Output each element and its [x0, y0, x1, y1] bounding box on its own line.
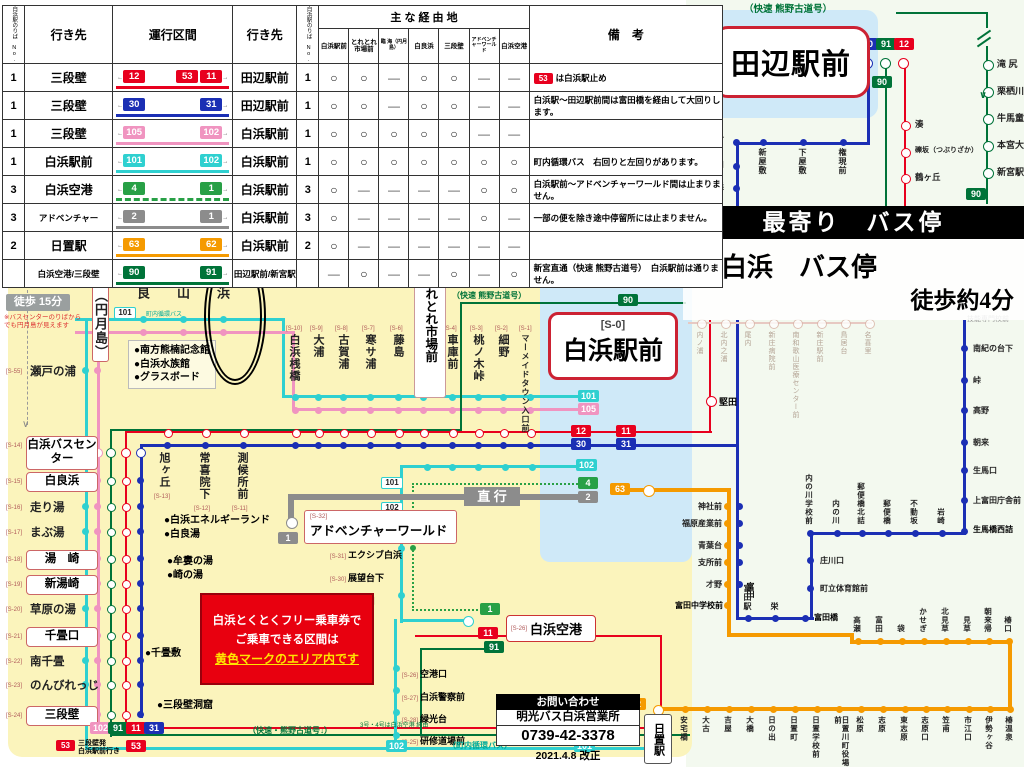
- walk15-note: ※バスセンターのりばからでも円月島が見えます: [4, 314, 84, 331]
- station-label: 本宮大社前: [997, 140, 1024, 150]
- station-label: [S-13]: [154, 494, 170, 501]
- station-label: [S-8]: [335, 326, 348, 333]
- route-line: [622, 488, 729, 492]
- table-cell: ○: [439, 260, 469, 288]
- stop-dot: [315, 394, 322, 401]
- table-cell: ○: [409, 120, 439, 148]
- table-cell: 2: [3, 232, 25, 260]
- station-label-v: 日置町: [790, 716, 798, 742]
- route-badge-11: 11: [616, 425, 636, 437]
- stop-dot: [697, 319, 707, 329]
- contact-header: お問い合わせ: [496, 694, 640, 710]
- table-cell: —: [379, 260, 409, 288]
- table-cell: —: [409, 176, 439, 204]
- stop-dot: [736, 520, 743, 527]
- table-cell: ○: [439, 120, 469, 148]
- table-cell: ○: [319, 148, 349, 176]
- stop-dot: [865, 319, 875, 329]
- station-label-v: 桃ノ木峠: [472, 334, 483, 382]
- table-cell: 田辺駅前: [233, 64, 297, 92]
- table-cell: ○: [469, 148, 499, 176]
- table-cell: —: [379, 176, 409, 204]
- stop-dot: [834, 530, 841, 537]
- stop-dot: [475, 394, 482, 401]
- stop-dot: [807, 557, 814, 564]
- stop-dot: [502, 464, 509, 471]
- route-badge-2: 2: [578, 491, 598, 503]
- station-label: のんびれっじ: [30, 680, 99, 693]
- table-cell: 1: [3, 120, 25, 148]
- station-label: [S-27]白浜警察前: [402, 687, 465, 705]
- stop-dot: [367, 394, 374, 401]
- station-label-v: 内の川: [832, 500, 840, 526]
- stop-dot: [736, 581, 743, 588]
- station-label-v: 寒サ浦: [364, 334, 375, 370]
- route-chip-101: 101: [123, 154, 145, 167]
- stop-dot: [107, 580, 116, 589]
- stop-dot: [500, 407, 507, 414]
- stop-dot: [643, 485, 655, 497]
- route-badge-4: 4: [578, 477, 598, 489]
- stop-dot: [901, 121, 911, 131]
- stop-dot: [772, 615, 779, 622]
- airport-via-note: 3号・4号は白浜空港 経由: [360, 720, 428, 729]
- station-label: まぶ湯: [30, 527, 65, 540]
- stop-dot: [286, 517, 298, 529]
- station-box: 千畳口: [26, 627, 98, 647]
- stop-dot: [745, 319, 755, 329]
- route-chip-63: 63: [123, 238, 145, 251]
- adventure-world-label: アドベンチャーワールド: [310, 520, 456, 539]
- stop-dot: [724, 503, 731, 510]
- poi-note: ●三段壁洞窟: [157, 699, 213, 713]
- station-box: 白浜バスセンター: [26, 436, 98, 470]
- route-line: [140, 444, 738, 447]
- table-row: 白浜空港/三段壁←9091→田辺駅前/新宮駅—○——○—○新宮直通（快速 熊野古…: [3, 260, 723, 288]
- stop-dot: [793, 319, 803, 329]
- table-cell: ○: [469, 204, 499, 232]
- stop-dot: [315, 429, 324, 438]
- contact-office: 明光バス白浜営業所: [497, 710, 639, 726]
- route-line: [282, 318, 285, 398]
- free-pass-line2: ご乗車できる区間は: [202, 631, 372, 647]
- stop-dot: [395, 394, 402, 401]
- table-cell: ○: [499, 176, 529, 204]
- station-label-v: かせぎ: [919, 608, 927, 634]
- table-cell: —: [439, 204, 469, 232]
- station-label-v: 測候所前: [236, 452, 247, 500]
- table-cell: ←125311→: [113, 64, 233, 92]
- station-label-v: 日の出: [768, 716, 776, 742]
- stop-dot: [393, 687, 400, 694]
- route-line: [1008, 640, 1012, 710]
- station-label-v: 岩崎: [937, 508, 945, 525]
- stop-dot: [106, 448, 116, 458]
- route-line: [736, 446, 739, 620]
- station-label-v: 椿口: [1004, 616, 1012, 633]
- station-label-v: 富田駅: [743, 584, 751, 611]
- table-cell: 一部の便を除き途中停留所には止まりません。: [529, 204, 722, 232]
- stop-dot: [137, 711, 144, 718]
- stop-dot: [137, 681, 144, 688]
- stop-dot: [367, 442, 374, 449]
- station-label: 神社前: [698, 502, 722, 511]
- station-label: 牛馬童子口: [997, 113, 1024, 123]
- kaisoku-kumano-top-label: （快速 熊野古道号）: [744, 1, 832, 15]
- stop-dot: [202, 442, 209, 449]
- contact-revision: 2021.4.8 改正: [496, 748, 640, 763]
- stop-dot: [912, 530, 919, 537]
- stop-dot: [180, 329, 187, 336]
- stop-dot: [137, 605, 144, 612]
- station-label-v: 朝来帰: [984, 608, 992, 634]
- table-cell: ←6362→: [113, 232, 233, 260]
- table-cell: ○: [409, 64, 439, 92]
- stop-dot: [137, 477, 144, 484]
- stop-dot: [137, 632, 144, 639]
- table-cell: —: [499, 232, 529, 260]
- table-cell: 白浜駅のりば No.: [297, 6, 319, 64]
- free-pass-promo-box: 白浜とくとくフリー乗車券で ご乗車できる区間は 黄色マークのエリア内です: [200, 593, 374, 685]
- timetable: 白浜駅のりば No.行き先運行区間行き先白浜駅のりば No.主 な 経 由 地備…: [2, 5, 723, 288]
- route-line: [727, 633, 854, 637]
- station-label: ∨: [22, 419, 29, 431]
- stop-dot: [745, 615, 752, 622]
- stop-dot: [449, 442, 456, 449]
- stop-dot: [82, 503, 89, 510]
- station-label: [S-19]: [6, 582, 22, 589]
- table-row: 1三段壁←3031→田辺駅前1○○—○○——白浜駅〜田辺駅前間は富田橋を経由して…: [3, 92, 723, 120]
- stop-dot: [724, 581, 731, 588]
- stop-dot: [807, 585, 814, 592]
- table-cell: 白浜駅前: [233, 204, 297, 232]
- free-pass-line1: 白浜とくとくフリー乗車券で: [202, 612, 372, 628]
- station-label-v: 権現前: [838, 148, 846, 175]
- route-badge-1: 1: [278, 532, 298, 544]
- station-label-v: 新庄駅前: [816, 331, 823, 363]
- stop-dot: [164, 429, 173, 438]
- station-label-v: 見草: [963, 616, 971, 633]
- station-label: [S-15]: [6, 479, 22, 486]
- table-cell: 運行区間: [113, 6, 233, 64]
- route-badge-12: 12: [894, 38, 914, 50]
- stop-dot: [292, 429, 301, 438]
- stop-dot: [475, 429, 484, 438]
- table-cell: ○: [319, 92, 349, 120]
- station-label: 南紀の台下: [973, 344, 1013, 353]
- nearest-stop-panel: 東白浜 バス停 徒歩約4分: [683, 239, 1024, 320]
- station-label: 鶴ヶ丘: [915, 173, 941, 183]
- table-cell: 備 考: [529, 6, 722, 64]
- route-badge-53: 53: [126, 740, 146, 752]
- table-cell: —: [379, 64, 409, 92]
- table-cell: ○: [439, 148, 469, 176]
- chonai-top-label: 町内循環バス: [146, 309, 182, 318]
- stop-dot: [500, 442, 507, 449]
- stop-dot: [122, 711, 131, 720]
- stop-dot: [961, 439, 968, 446]
- table-cell: —: [499, 204, 529, 232]
- route-badge-101: 101: [114, 307, 136, 319]
- table-cell: 白浜駅〜田辺駅前間は富田橋を経由して大回りします。: [529, 92, 722, 120]
- stop-dot: [760, 139, 767, 146]
- stop-dot: [395, 429, 404, 438]
- shirahama-station-id: [S-0]: [551, 319, 675, 331]
- stop-dot: [736, 542, 743, 549]
- stop-dot: [121, 448, 131, 458]
- table-cell: 行き先: [233, 6, 297, 64]
- station-label: [S-11]: [232, 506, 248, 513]
- route-line: [810, 532, 813, 620]
- stop-dot: [164, 442, 171, 449]
- shirahama-station-box: [S-0] 白浜駅前: [548, 312, 678, 380]
- stop-dot: [704, 706, 711, 713]
- stop-dot: [122, 657, 131, 666]
- table-cell: —: [469, 120, 499, 148]
- station-label-v: 東志原: [900, 716, 908, 742]
- station-label-v: 椿温泉: [1005, 716, 1013, 742]
- route53-note-line2: 白浜駅前行き: [78, 748, 120, 756]
- nearest-stop-banner: 最寄り バス停: [683, 206, 1024, 239]
- airport-label: 白浜空港: [530, 619, 582, 638]
- table-cell: ←101102→: [113, 148, 233, 176]
- table-cell: ○: [379, 120, 409, 148]
- table-cell: ○: [349, 260, 379, 288]
- stop-dot: [393, 709, 400, 716]
- station-label: 礫坂（つぶりざか）: [915, 147, 978, 155]
- station-label-v: 吉屋: [724, 716, 732, 733]
- station-label-v: 伊勢ヶ谷: [985, 716, 993, 750]
- route-badge-101: 101: [578, 390, 599, 402]
- stop-dot: [137, 555, 144, 562]
- route-chip-31: 31: [200, 98, 222, 111]
- table-cell: —: [439, 232, 469, 260]
- stop-dot: [82, 657, 89, 664]
- route-badge-90: 90: [966, 188, 986, 200]
- stop-dot: [748, 706, 755, 713]
- stop-dot: [137, 580, 144, 587]
- table-cell: 三段壁: [25, 92, 113, 120]
- stop-dot: [240, 429, 249, 438]
- stop-dot: [449, 464, 456, 471]
- table-row: 1白浜駅前←101102→白浜駅前1○○○○○○○町内循環バス 右回りと左回りが…: [3, 148, 723, 176]
- route-line: [288, 494, 580, 500]
- shirahama-station-label: 白浜駅前: [551, 331, 675, 367]
- station-label: [S-1]: [519, 326, 532, 333]
- station-label: 上富田庁舎前: [973, 496, 1021, 505]
- table-cell: ○: [349, 92, 379, 120]
- station-label: [S-14]: [6, 443, 22, 450]
- station-label-v: 北見草: [941, 608, 949, 634]
- route-chip-2: 2: [123, 210, 145, 223]
- table-cell: —: [469, 92, 499, 120]
- route-chip-102: 102: [200, 154, 222, 167]
- stop-dot: [82, 367, 89, 374]
- table-cell: アドベンチャーワールド: [469, 29, 499, 64]
- route-badge-102: 102: [386, 740, 407, 752]
- stop-dot: [292, 407, 299, 414]
- stop-dot: [475, 464, 482, 471]
- station-label: [S-7]: [362, 326, 375, 333]
- stop-dot: [340, 407, 347, 414]
- table-row: 3白浜空港←41→白浜駅前3○————○○白浜駅前〜アドベンチャーワールド間は止…: [3, 176, 723, 204]
- station-label: 湊: [915, 120, 924, 130]
- station-label: 生馬口: [973, 466, 997, 475]
- stop-dot: [122, 528, 131, 537]
- table-cell: —: [409, 260, 439, 288]
- stop-dot: [107, 528, 116, 537]
- station-label: [S-10]: [286, 326, 302, 333]
- route-line: [412, 483, 582, 485]
- stop-dot: [107, 605, 116, 614]
- stop-dot: [136, 448, 146, 458]
- stop-dot: [987, 706, 994, 713]
- bus-route-map-poster: 白浜駅のりば No.行き先運行区間行き先白浜駅のりば No.主 な 経 由 地備…: [0, 0, 1024, 767]
- station-tondabashi: 富田橋: [814, 612, 838, 623]
- table-cell: [3, 260, 25, 288]
- stop-dot: [107, 657, 116, 666]
- station-label-v: 下屋敷: [798, 148, 806, 175]
- stop-dot: [82, 605, 89, 612]
- stop-dot: [315, 442, 322, 449]
- kaisoku-mid-label: （快速 熊野古道号）: [452, 290, 526, 301]
- station-label: [S-6]: [390, 326, 403, 333]
- stop-dot: [449, 394, 456, 401]
- station-label: [S-23]: [6, 683, 22, 690]
- station-label: 栗栖川: [997, 86, 1024, 96]
- stop-dot: [901, 148, 911, 158]
- stop-dot: [340, 429, 349, 438]
- stop-dot: [410, 545, 416, 551]
- route-badge-91: 91: [876, 38, 896, 50]
- stop-dot: [292, 394, 299, 401]
- station-label-v: 古賀浦: [337, 334, 348, 370]
- stop-dot: [137, 657, 144, 664]
- table-cell: ←9091→: [113, 260, 233, 288]
- table-cell: ○: [439, 64, 469, 92]
- stop-dot: [792, 706, 799, 713]
- stop-dot: [107, 711, 116, 720]
- table-cell: 白浜駅前: [233, 148, 297, 176]
- stop-dot: [122, 555, 131, 564]
- table-cell: 3: [3, 176, 25, 204]
- stop-dot: [94, 503, 101, 510]
- route-badge-11: 11: [126, 722, 146, 734]
- stop-dot: [94, 657, 101, 664]
- station-box: 白良浜: [26, 472, 98, 492]
- stop-dot: [859, 530, 866, 537]
- table-cell: —: [349, 176, 379, 204]
- station-label-v: 旭ヶ丘: [158, 452, 169, 488]
- table-cell: 三段壁: [439, 29, 469, 64]
- table-cell: 白浜空港: [25, 176, 113, 204]
- table-cell: 3: [297, 204, 319, 232]
- route-badge-31: 31: [616, 438, 636, 450]
- stop-dot: [836, 706, 843, 713]
- station-label: 南千畳: [30, 656, 65, 669]
- stop-dot: [449, 429, 458, 438]
- route-chip-91: 91: [200, 266, 222, 279]
- table-cell: —: [379, 92, 409, 120]
- route-line: [904, 64, 906, 206]
- table-cell: 三段壁: [25, 64, 113, 92]
- table-cell: 日置駅: [25, 232, 113, 260]
- station-box: 三段壁: [26, 706, 98, 726]
- stop-dot: [877, 638, 884, 645]
- route-chip-62: 62: [200, 238, 222, 251]
- table-cell: 白浜駅前: [233, 232, 297, 260]
- stop-dot: [424, 464, 431, 471]
- stop-dot: [901, 174, 911, 184]
- station-label: 高野: [973, 406, 989, 415]
- table-cell: —: [469, 232, 499, 260]
- stop-dot: [393, 665, 400, 672]
- table-cell: 3: [297, 176, 319, 204]
- station-label-v: 市江口: [964, 716, 972, 742]
- kaisoku-bottom-label: （快速・熊野古道号↓）: [248, 725, 332, 736]
- stop-dot: [770, 706, 777, 713]
- hiki-station-box: 日置駅: [644, 714, 672, 764]
- station-label: [S-9]: [310, 326, 323, 333]
- station-label: [S-22]: [6, 659, 22, 666]
- route-badge-31: 31: [144, 722, 164, 734]
- stop-dot: [855, 638, 862, 645]
- table-cell: 白良浜: [409, 29, 439, 64]
- route-line: [709, 320, 711, 432]
- station-label-v: 鳥居台: [840, 331, 847, 355]
- stop-dot: [923, 706, 930, 713]
- station-label-v: 志原: [878, 716, 886, 733]
- stop-dot: [395, 442, 402, 449]
- table-cell: 1: [297, 64, 319, 92]
- route-line: [896, 12, 988, 14]
- station-label: 庄川口: [820, 556, 844, 565]
- station-label: [S-16]: [6, 505, 22, 512]
- table-cell: 1: [297, 92, 319, 120]
- stop-dot: [726, 706, 733, 713]
- station-label-v: 藤島: [392, 334, 403, 358]
- stop-dot: [367, 407, 374, 414]
- table-cell: ○: [499, 148, 529, 176]
- table-cell: 白浜空港: [499, 29, 529, 64]
- stop-dot: [122, 580, 131, 589]
- stop-dot: [733, 185, 740, 192]
- station-label-v: 安宅橋: [680, 716, 688, 742]
- stop-dot: [966, 706, 973, 713]
- route-line: [420, 648, 490, 650]
- stop-dot: [500, 429, 509, 438]
- station-label: 草原の湯: [30, 604, 76, 617]
- poi-note: ●千畳敷: [145, 647, 181, 661]
- route-chip-12: 12: [123, 70, 145, 83]
- walk15-badge: 徒歩 15分: [6, 294, 70, 311]
- station-label-v: 日置川町役場前: [834, 716, 849, 767]
- table-cell: ○: [319, 232, 349, 260]
- route-line: [460, 302, 686, 304]
- station-label: [S-21]: [6, 634, 22, 641]
- table-cell: ←41→: [113, 176, 233, 204]
- stop-dot: [939, 530, 946, 537]
- stop-dot: [724, 602, 731, 609]
- stop-dot: [961, 345, 968, 352]
- station-label: 新宮駅: [997, 167, 1024, 177]
- tanabe-station-label: 田辺駅前: [731, 41, 851, 83]
- table-cell: —: [469, 64, 499, 92]
- station-label: [S-24]: [6, 713, 22, 720]
- route-chip-11: 11: [200, 70, 222, 83]
- table-cell: とれとれ市場前: [349, 29, 379, 64]
- station-lightblue-bg: [540, 262, 692, 562]
